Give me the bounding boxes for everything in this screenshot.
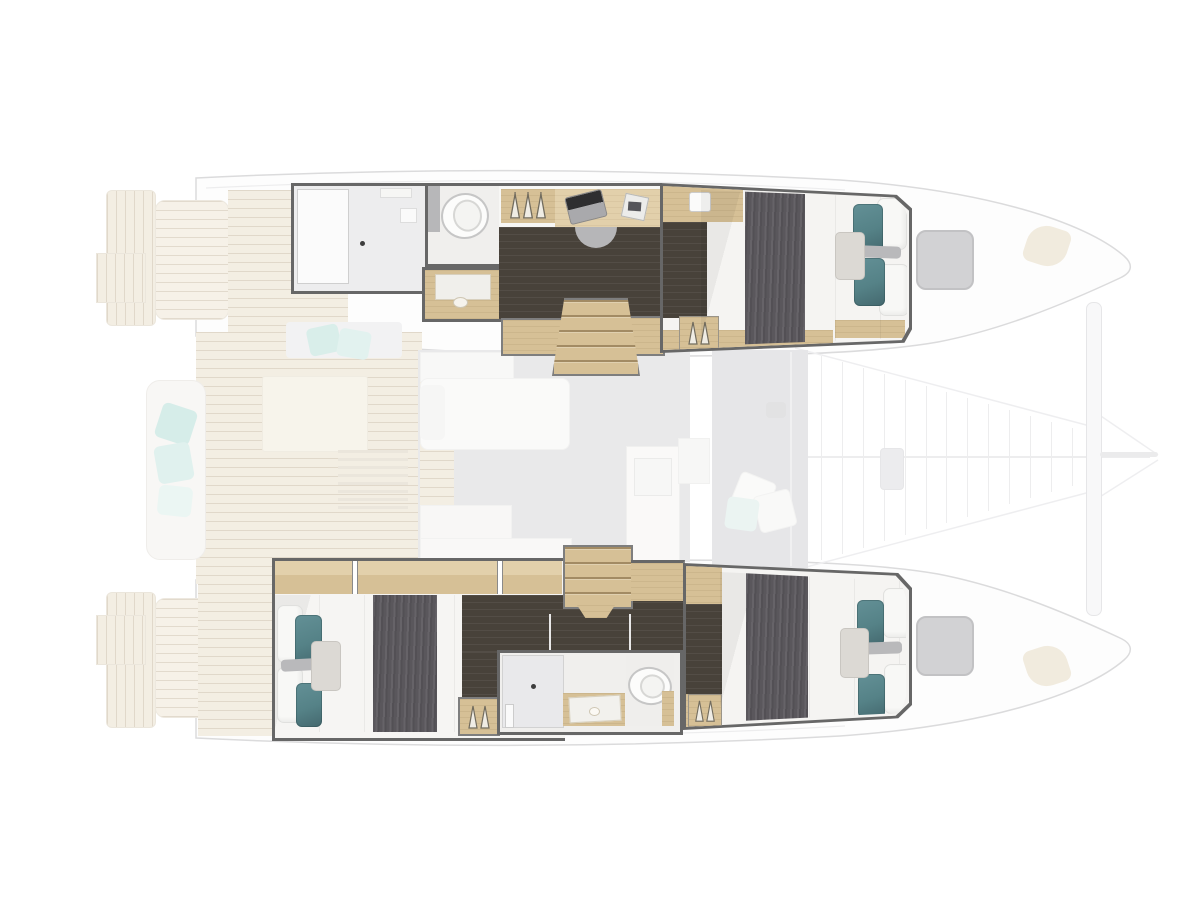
cockpit-cushion (153, 441, 195, 485)
vanity-sink (453, 297, 468, 308)
toilet-room (626, 655, 674, 726)
double-bed (275, 595, 462, 732)
forward-cockpit (712, 350, 808, 568)
tray-item (628, 201, 642, 211)
trampoline-line (967, 398, 968, 517)
towel-rail (505, 704, 514, 728)
desk (555, 189, 660, 227)
grey-pillow (840, 628, 869, 678)
hangers-icon (689, 695, 721, 726)
faded-boat-overview (0, 0, 1200, 900)
bowsprit (1100, 452, 1158, 457)
trampoline-line (926, 386, 927, 529)
cockpit-cushion (157, 484, 194, 517)
toilet (438, 190, 492, 242)
bottom-companionway-stairs (563, 545, 633, 609)
door-swing (629, 614, 631, 652)
island-sink (634, 458, 672, 496)
trampoline-line (1030, 416, 1031, 498)
double-bed (701, 190, 907, 346)
trampoline-line (1072, 428, 1073, 486)
trampoline-line (842, 362, 843, 554)
cockpit-table (262, 376, 368, 452)
deck-hatch-starboard (916, 616, 974, 676)
toilet-counter (662, 691, 674, 726)
deck-fitting (766, 402, 786, 418)
trampoline-line (988, 404, 989, 511)
cabin-entry-floor (663, 222, 707, 318)
boarding-ladder-starboard (96, 615, 146, 665)
top-bench-left (501, 318, 565, 356)
top-wardrobe (501, 189, 555, 223)
shower-door (297, 189, 349, 284)
laptop (564, 189, 608, 225)
shelf-band-right (631, 560, 685, 601)
cabin-entry-floor (686, 604, 722, 694)
boarding-ladder-port (96, 253, 146, 303)
trampoline-line (1009, 410, 1010, 504)
top-companionway-stairs (552, 298, 640, 376)
top-shower-room (291, 183, 431, 294)
shower-drain (360, 241, 365, 246)
trampoline-line (863, 368, 864, 548)
double-bed (720, 572, 906, 722)
hangers-icon (460, 699, 498, 734)
teal-pillow (858, 674, 885, 718)
cabin-wardrobe (688, 694, 722, 727)
shower (502, 655, 564, 728)
settee-cushion (336, 327, 372, 360)
shower-fitting (400, 208, 417, 223)
vanity-sink (589, 707, 600, 716)
swim-platform-port (155, 200, 229, 320)
hangers-icon (501, 189, 555, 223)
door-swing (549, 614, 551, 652)
deck-grate (338, 450, 408, 512)
bottom-wardrobe (458, 697, 500, 736)
shower-shelf (380, 188, 412, 198)
catamaran-floor-plan (0, 0, 1200, 900)
bottom-bathroom (497, 650, 683, 735)
bed-blanket (373, 595, 437, 732)
vanity (563, 693, 625, 726)
cabin-shelf (686, 566, 722, 604)
white-pillow (883, 588, 912, 638)
sofa-chaise (420, 385, 445, 440)
vanity-counter (435, 274, 491, 300)
coachroof-front-line (790, 352, 792, 566)
top-vanity (422, 267, 502, 322)
trampoline-line (946, 392, 947, 523)
top-cabin (663, 186, 909, 350)
bed-blanket (745, 190, 805, 346)
deck-hatch-port (916, 230, 974, 290)
trampoline-line (1051, 422, 1052, 492)
grey-pillow (311, 641, 341, 691)
top-toilet-room (425, 183, 502, 267)
shower-drain (531, 684, 536, 689)
trampoline-line (821, 356, 822, 560)
trampoline-line (905, 380, 906, 535)
shelf-divider (497, 561, 503, 594)
foredeck-pillow (724, 496, 760, 532)
forward-crossbeam (1086, 302, 1102, 616)
bed-blanket (746, 572, 808, 722)
toilet-seat (451, 198, 484, 234)
toilet-wall-nook (428, 186, 440, 232)
bottom-cabin (686, 566, 909, 727)
desk-tray (621, 193, 649, 221)
saloon-cabinet (678, 438, 710, 484)
grey-pillow (835, 232, 865, 280)
shelf-band (275, 561, 562, 594)
bed-throw (859, 245, 901, 258)
shelf-divider (352, 561, 358, 594)
mast-step (880, 448, 904, 490)
galley-counter (420, 505, 512, 541)
